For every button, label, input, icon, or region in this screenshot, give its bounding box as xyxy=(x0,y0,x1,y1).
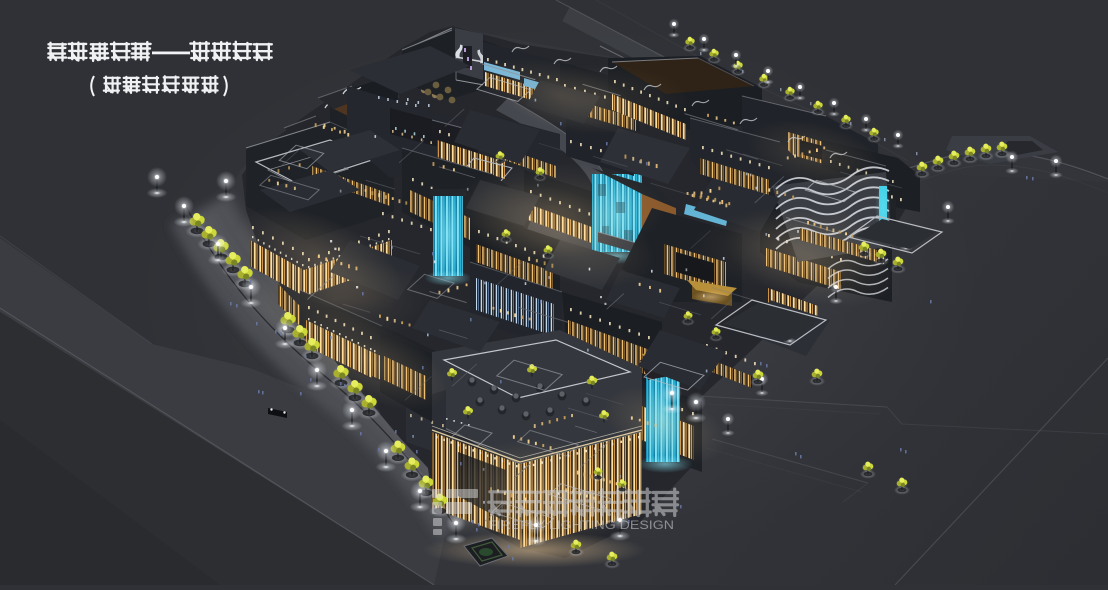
svg-text:FIREFLY LIGHTING DESIGN: FIREFLY LIGHTING DESIGN xyxy=(488,518,674,532)
